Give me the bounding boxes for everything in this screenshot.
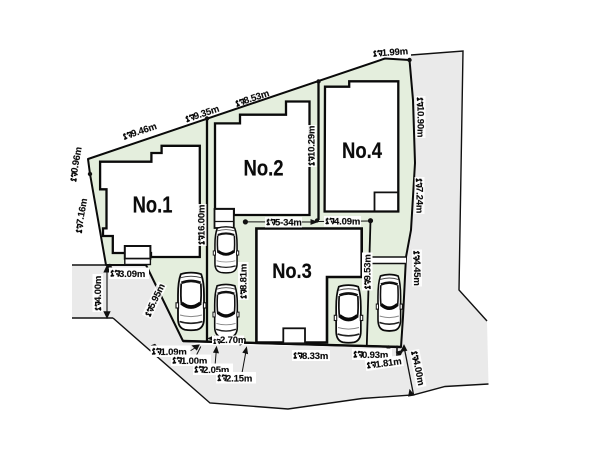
svg-text:5-34m: 5-34m (275, 218, 302, 229)
svg-text:7.24m: 7.24m (414, 187, 425, 213)
svg-text:No.4: No.4 (342, 140, 383, 164)
svg-text:16.00m: 16.00m (197, 205, 208, 236)
svg-text:No.2: No.2 (243, 157, 283, 181)
svg-text:10.29m: 10.29m (307, 126, 318, 157)
svg-text:8.81m: 8.81m (239, 264, 250, 290)
svg-text:8.33m: 8.33m (302, 351, 328, 362)
svg-text:3.09m: 3.09m (119, 269, 145, 280)
svg-text:No.3: No.3 (272, 260, 312, 283)
svg-text:2.15m: 2.15m (226, 374, 252, 385)
svg-text:No.1: No.1 (133, 193, 173, 218)
svg-text:4.00m: 4.00m (93, 276, 104, 302)
svg-text:2.70m: 2.70m (220, 335, 246, 346)
svg-text:9.53m: 9.53m (363, 254, 374, 280)
svg-text:4.09m: 4.09m (334, 217, 360, 228)
svg-text:10.90m: 10.90m (415, 106, 426, 137)
svg-text:4.45m: 4.45m (411, 260, 422, 286)
svg-text:1.99m: 1.99m (381, 46, 408, 59)
